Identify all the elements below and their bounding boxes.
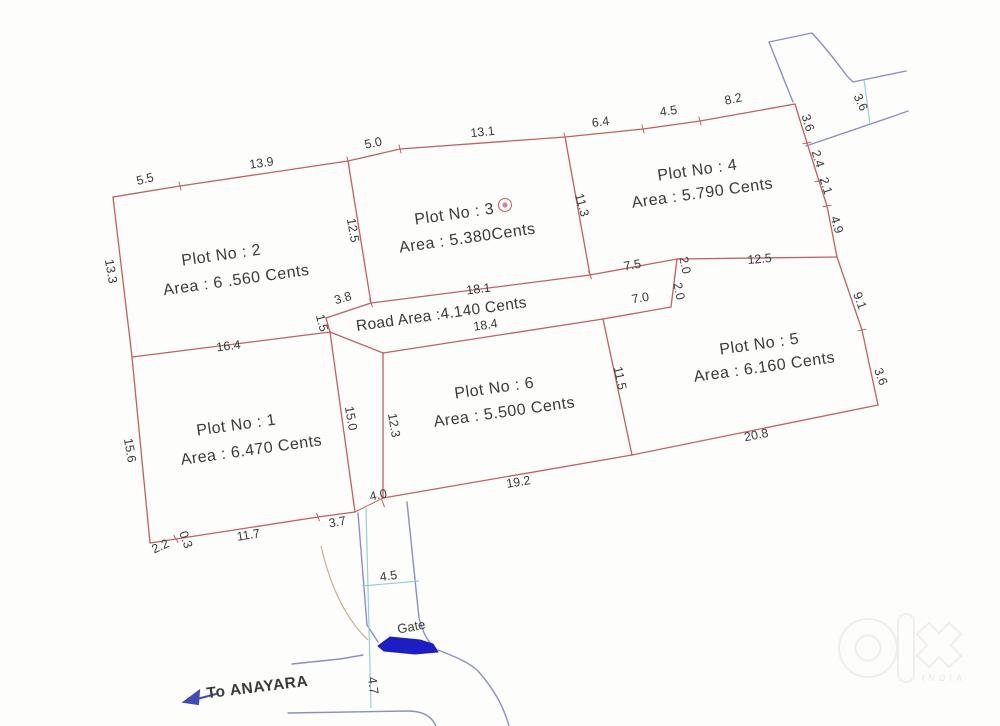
dimension-label: 18.4 — [472, 316, 498, 333]
gate-label: Gate — [396, 617, 426, 637]
olx-watermark: INDIA — [839, 614, 967, 683]
dimension-label: 18.1 — [466, 281, 492, 298]
road-area-label: Road Area :4.140 Cents — [355, 294, 528, 335]
northeast-road-upper-edge — [769, 33, 906, 82]
top-boundary-edge — [113, 104, 795, 197]
dimension-label: 3.8 — [333, 289, 354, 307]
plot-2-title: Plot No : 2 — [180, 242, 262, 270]
dimension-helper-lines — [362, 80, 870, 708]
dimension-label: 4.7 — [365, 676, 381, 695]
plot-6-title: Plot No : 6 — [453, 375, 535, 403]
olx-logo-o-icon — [839, 619, 897, 677]
plot5-right-edge — [837, 257, 878, 405]
dimension-label: 11.7 — [236, 526, 261, 543]
dimension-label: 7.5 — [623, 257, 643, 274]
dimension-label: 5.0 — [363, 134, 383, 151]
plot5-top-edge — [603, 307, 671, 319]
dimension-label: 9.1 — [850, 290, 869, 311]
olx-watermark-sub: INDIA — [922, 673, 967, 683]
dimension-label: 16.4 — [216, 338, 242, 355]
access-roads — [288, 33, 908, 726]
street-lower-edge — [288, 711, 436, 726]
site-plan-image: 5.513.95.013.16.44.58.213.312.511.33.62.… — [0, 0, 1000, 726]
dimension-label: 13.3 — [102, 258, 120, 284]
dimension-label: 12.5 — [344, 217, 362, 243]
plot-1-title: Plot No : 1 — [195, 412, 277, 440]
dimension-label: 12.3 — [385, 412, 403, 438]
to-anayara-label: To ANAYARA — [206, 673, 309, 702]
olx-logo-x-icon — [917, 623, 961, 667]
well-symbol-icon — [499, 199, 512, 212]
dimension-label: 8.2 — [723, 90, 743, 107]
dimension-label: 19.2 — [505, 473, 531, 491]
dimension-label: 13.9 — [248, 154, 274, 171]
dimension-label: 0.3 — [176, 529, 195, 550]
plot-6-area: Area : 5.500 Cents — [433, 394, 576, 431]
olx-logo-l-icon — [898, 614, 914, 682]
dimension-label: 2.1 — [816, 175, 835, 196]
dimension-label: 15.6 — [121, 437, 139, 463]
dimension-label: 4.5 — [659, 103, 678, 119]
gate-shape — [378, 637, 438, 654]
labels-layer: 5.513.95.013.16.44.58.213.312.511.33.62.… — [102, 90, 890, 702]
footpath-line — [321, 546, 368, 640]
dimension-label: 6.4 — [591, 114, 610, 130]
dimension-label: 12.5 — [747, 251, 773, 267]
street-right-curve — [438, 650, 509, 726]
dimension-label: 2.0 — [670, 281, 687, 301]
northeast-road-left-edge — [769, 42, 793, 102]
dimension-label: 11.3 — [572, 192, 592, 218]
dimension-label: 3.6 — [798, 112, 817, 133]
dimension-label: 2.0 — [676, 255, 693, 275]
plot-3-title: Plot No : 3 — [413, 201, 495, 229]
road-bend-edge — [330, 332, 383, 353]
dimension-label: 2.2 — [149, 536, 171, 556]
dimension-label: 20.8 — [743, 426, 770, 444]
dimension-label: 4.9 — [827, 214, 846, 235]
plot-5-area: Area : 6.160 Cents — [693, 349, 836, 386]
dimension-label: 7.0 — [631, 290, 651, 307]
dimension-label: 1.5 — [313, 313, 331, 333]
dimension-label: 4.5 — [379, 568, 398, 584]
northeast-road-lower-edge — [806, 111, 908, 146]
plot-4-title: Plot No : 4 — [656, 157, 738, 185]
dimension-label: 5.5 — [135, 170, 155, 188]
site-plan-svg: 5.513.95.013.16.44.58.213.312.511.33.62.… — [0, 0, 1000, 726]
dimension-label: 3.7 — [328, 514, 348, 531]
dimension-label: 15.0 — [342, 405, 360, 431]
dimension-label: 11.5 — [611, 365, 630, 391]
dimension-label: 13.1 — [470, 124, 496, 140]
dimension-label: 2.4 — [808, 148, 827, 169]
dimension-label: 4.0 — [368, 486, 388, 503]
plot-5-title: Plot No : 5 — [718, 331, 800, 359]
street-left-edge — [292, 655, 363, 664]
plot-4-area: Area : 5.790 Cents — [631, 175, 774, 212]
